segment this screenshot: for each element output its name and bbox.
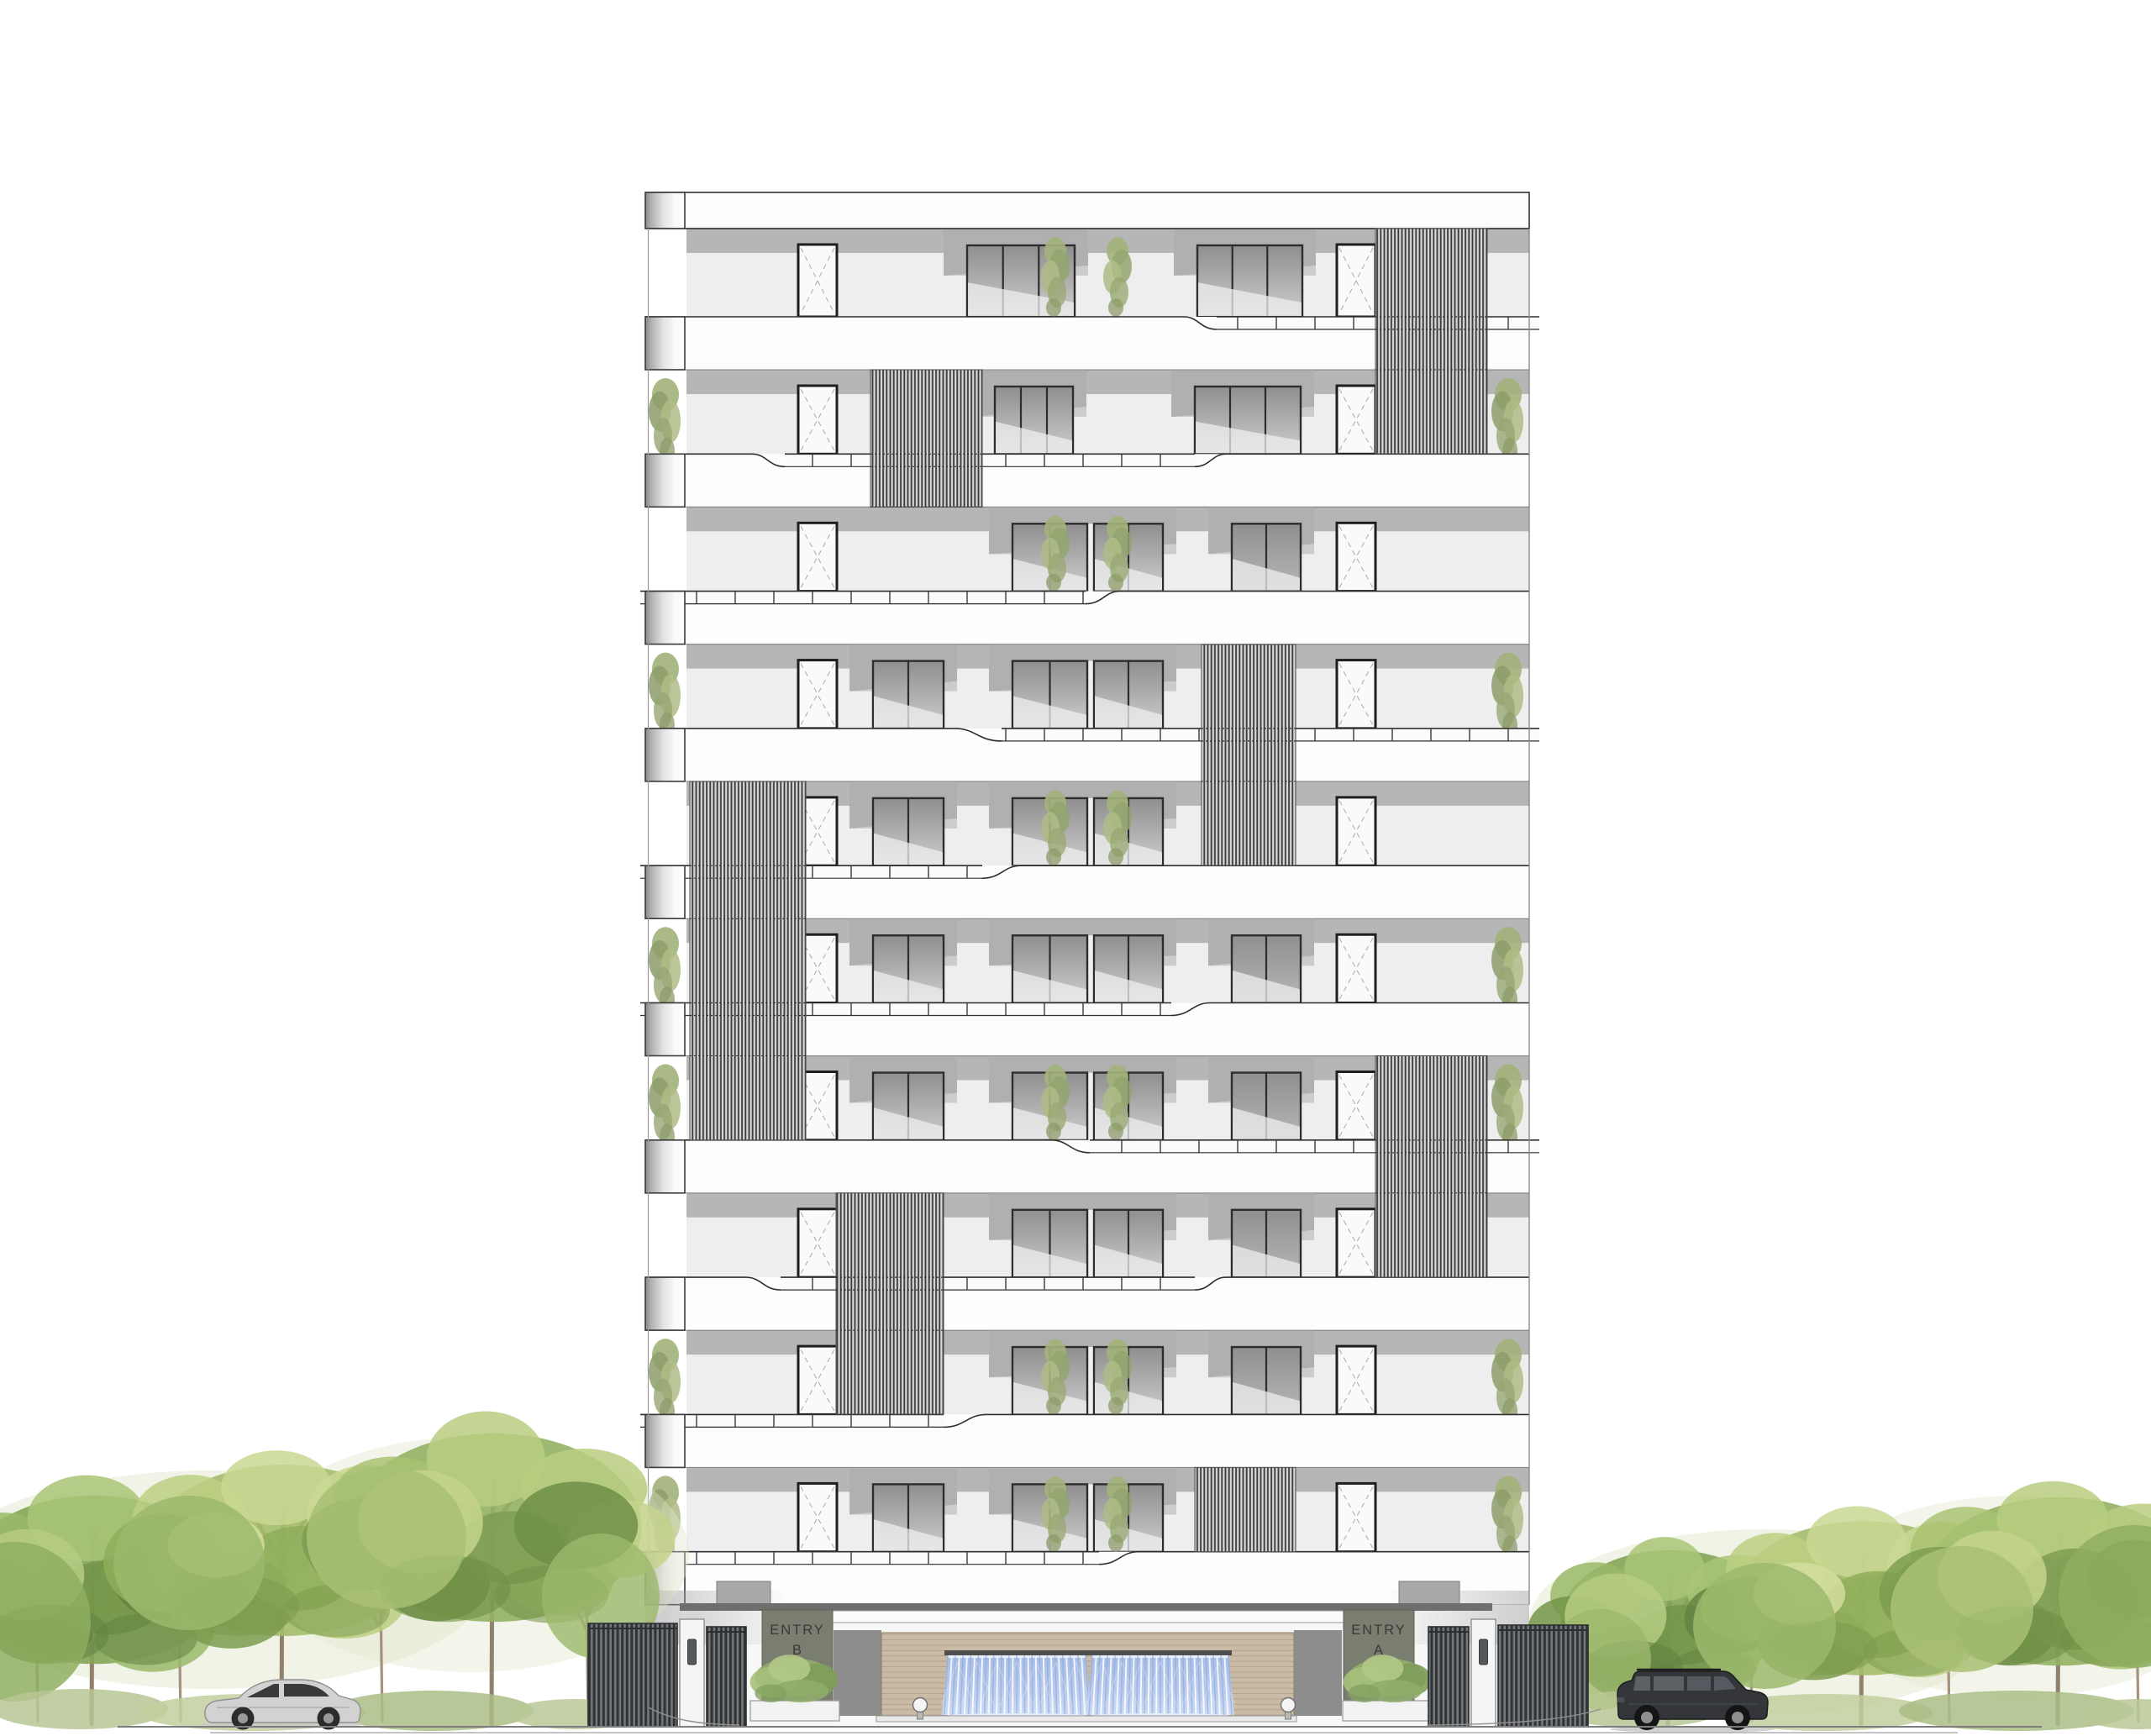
svg-text:ENTRY: ENTRY [1351, 1623, 1407, 1638]
svg-text:ENTRY: ENTRY [770, 1623, 825, 1638]
